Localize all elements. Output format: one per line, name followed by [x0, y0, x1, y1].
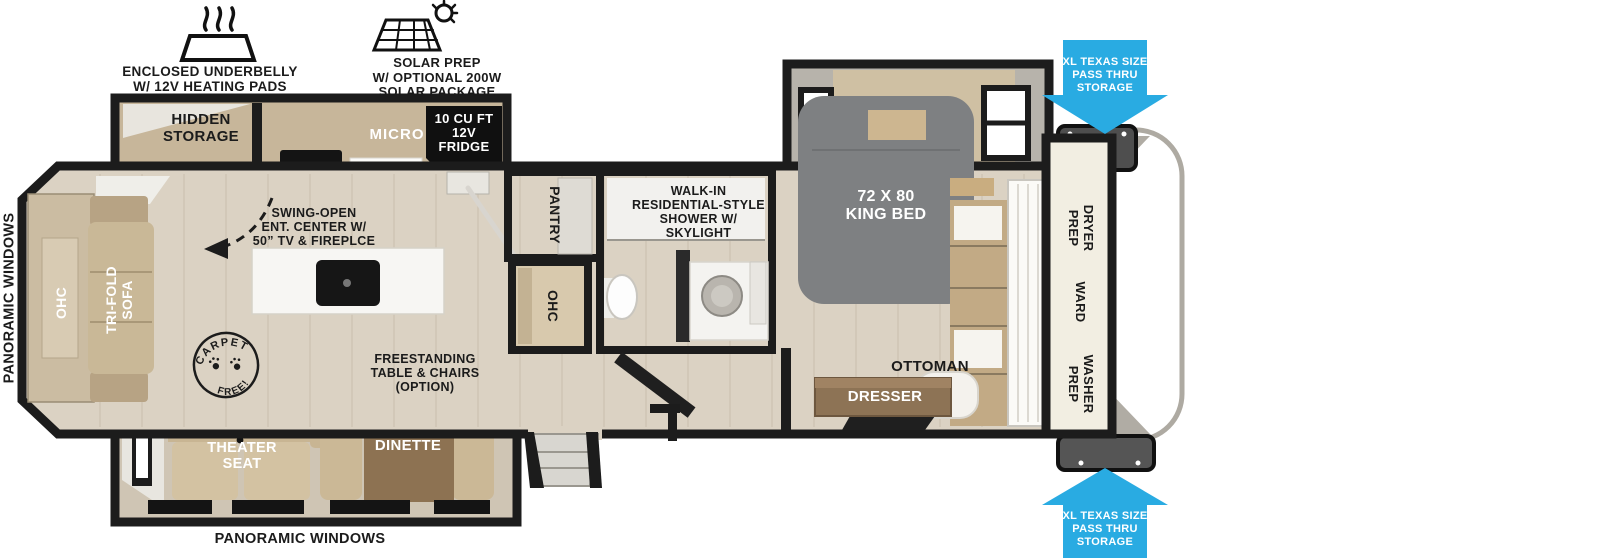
- label-tri-fold-sofa: TRI-FOLD SOFA: [104, 245, 136, 355]
- label-ent-center: SWING-OPEN ENT. CENTER W/ 50” TV & FIREP…: [240, 206, 388, 248]
- label-king-bed: 72 X 80 KING BED: [816, 188, 956, 224]
- label-panoramic-windows-left: PANORAMIC WINDOWS: [2, 196, 20, 401]
- label-hidden-storage: HIDDEN STORAGE: [145, 112, 257, 146]
- label-washer-prep: WASHER PREP: [1063, 339, 1095, 429]
- label-freestanding-table: FREESTANDING TABLE & CHAIRS (OPTION): [355, 352, 495, 394]
- label-dinette: DINETTE: [358, 438, 458, 455]
- label-theater-seat: THEATER SEAT: [182, 440, 302, 472]
- label-enclosed-underbelly: ENCLOSED UNDERBELLY W/ 12V HEATING PADS: [85, 64, 335, 94]
- label-micro: MICRO: [362, 127, 432, 144]
- rv-floorplan-diagram: CARPET FREE!: [0, 0, 1600, 558]
- heating-pads-icon: [182, 8, 254, 60]
- label-solar-prep: SOLAR PREP W/ OPTIONAL 200W SOLAR PACKAG…: [351, 56, 523, 100]
- toilet: [607, 275, 637, 319]
- label-panoramic-windows-bottom: PANORAMIC WINDOWS: [200, 531, 400, 547]
- label-pass-thru-top: XL TEXAS SIZE PASS THRU STORAGE: [1047, 56, 1163, 95]
- label-ohc-living: OHC: [54, 273, 70, 333]
- label-dryer-prep: DRYER PREP: [1063, 183, 1095, 273]
- label-walk-in-shower: WALK-IN RESIDENTIAL-STYLE SHOWER W/ SKYL…: [616, 184, 781, 240]
- label-fridge: 10 CU FT 12V FRIDGE: [424, 112, 504, 154]
- label-ward: WARD: [1071, 272, 1087, 332]
- label-dresser: DRESSER: [835, 389, 935, 406]
- label-ohc-bath: OHC: [544, 276, 560, 336]
- label-pantry: PANTRY: [546, 170, 562, 260]
- label-pass-thru-bottom: XL TEXAS SIZE PASS THRU STORAGE: [1047, 510, 1163, 549]
- label-ottoman: OTTOMAN: [870, 359, 990, 376]
- solar-prep-icon: [374, 1, 457, 50]
